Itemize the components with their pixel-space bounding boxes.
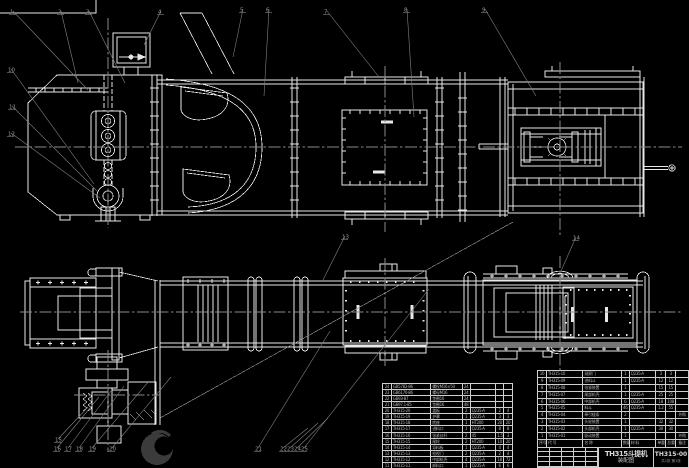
bom-cell: 1 (622, 433, 630, 440)
bom-cell: 驱动装置 (583, 433, 621, 440)
bom-cell: 9 (538, 378, 547, 385)
bom-cell: 中部机壳 (583, 399, 621, 406)
callout-label: 9 (482, 8, 486, 14)
leader-line (58, 407, 88, 439)
bom-cell: 头部机壳 (583, 426, 621, 433)
leader-line (327, 11, 379, 77)
bom-cell: 15 (666, 385, 676, 392)
bom-cell (666, 412, 676, 419)
bom-cell: 2 (538, 426, 547, 433)
leader-line (407, 9, 414, 117)
signature-cell (586, 462, 598, 467)
title-block-name-cell: TH315斗提机 装配图 (598, 447, 654, 467)
bom-cell: 3 (666, 371, 676, 378)
bom-cell (676, 385, 688, 392)
bom-cell (676, 399, 688, 406)
bom-cell: 观察门 (583, 371, 621, 378)
bom-cell: Q235-A (630, 371, 657, 378)
frame-corner (0, 0, 96, 13)
bom-cell: Q235-A (630, 378, 657, 385)
upper-view-head-section (479, 66, 675, 217)
bom-row: 7TH315-07尾部机壳1Q235-A2525 (538, 392, 688, 399)
lower-view-head-plan (464, 266, 649, 359)
leader-line (68, 391, 111, 448)
bom-cell: TH315-01 (547, 433, 583, 440)
bom-cell: 4 (538, 412, 547, 419)
drawing-number: TH315-00 (655, 451, 687, 459)
bom-row: 4TH315-04牵引链条2外购 (538, 412, 688, 419)
bom-cell: TH315-11 (392, 463, 431, 468)
callout-label: 2 (58, 10, 62, 16)
bom-cell: 6 (622, 399, 630, 406)
bom-cell: TH315-03 (547, 419, 583, 426)
bom-cell: 1 (538, 433, 547, 440)
leader-line (61, 11, 78, 83)
watermark-blob (141, 431, 174, 465)
bom-cell: TH315-04 (547, 412, 583, 419)
leader-line (12, 106, 97, 191)
callout-label: 10 (8, 68, 15, 74)
callout-label: 5 (240, 8, 244, 14)
bom-cell (630, 419, 657, 426)
callout-label: 4 (158, 10, 162, 16)
bom-row: 2TH315-02头部机壳1Q235-A3030 (538, 426, 688, 433)
bom-cell: 外购 (676, 412, 688, 419)
callout-label: 3 (86, 10, 90, 16)
callout-label: 7 (324, 10, 328, 16)
bom-cell: 1 (622, 371, 630, 378)
callout-label: 18 (76, 447, 83, 453)
drawing-title: TH315斗提机 (605, 450, 647, 458)
bom-cell (676, 378, 688, 385)
callout-label: 8 (404, 8, 408, 14)
bom-cell: 25 (666, 392, 676, 399)
upper-view-boot-section (28, 33, 162, 220)
bom-cell: 25 (656, 392, 666, 399)
sheet-note: 共1张 第1张 (661, 459, 681, 464)
bom-cell: 1 (622, 378, 630, 385)
callout-label: 13 (342, 235, 349, 241)
leader-line (89, 11, 125, 83)
leader-line (264, 9, 269, 96)
bom-cell: TH315-09 (547, 378, 583, 385)
bom-cell: 11 (383, 463, 392, 468)
bom-row: 6TH315-06中部机壳6Q235-A18108 (538, 399, 688, 406)
bom-row: 8TH315-08张紧装置11515 (538, 385, 688, 392)
callout-label: 21 (255, 447, 262, 453)
bom-cell: 8 (538, 385, 547, 392)
bom-cell (656, 433, 666, 440)
callout-label: 6 (266, 8, 270, 14)
bom-cell (630, 412, 657, 419)
title-block-number-cell: TH315-00 共1张 第1张 (654, 447, 688, 467)
bom-cell: 尾部机壳 (583, 392, 621, 399)
bom-cell: 15 (656, 385, 666, 392)
leader-line (144, 11, 161, 45)
bom-cell (676, 426, 688, 433)
bom-cell: 30 (666, 426, 676, 433)
leader-line (485, 9, 536, 96)
callout-label: 12 (8, 132, 15, 138)
bom-cell (676, 405, 688, 412)
bom-cell: TH315-05 (547, 405, 583, 412)
bom-row: 1TH315-01驱动装置1外购 (538, 433, 688, 440)
callout-label: 16 (54, 447, 61, 453)
bom-cell: 1.2 (656, 405, 666, 412)
cad-sheet: 1234567891011121314151617181920212223242… (0, 0, 689, 468)
bom-cell: 6 (504, 463, 512, 468)
bom-cell: 55 (666, 405, 676, 412)
upper-view-takeup-chain (91, 75, 126, 221)
bom-cell (676, 419, 688, 426)
callout-label: 1 (10, 10, 14, 16)
bom-cell: TH315-02 (547, 426, 583, 433)
signature-cell (574, 462, 586, 467)
lower-view-boot-plan (25, 268, 160, 425)
leader-line (57, 397, 99, 448)
bom-cell: Q235-A (630, 392, 657, 399)
bom-cell (676, 392, 688, 399)
leader-line (561, 237, 576, 271)
callout-label: 22 (280, 447, 287, 453)
bom-cell: 1 (622, 392, 630, 399)
leader-line (11, 133, 100, 198)
bom-cell: 12 (666, 378, 676, 385)
bom-cell: 1 (622, 426, 630, 433)
bom-cell: 32 (656, 419, 666, 426)
bom-cell: Q235-A (630, 426, 657, 433)
leader-line (322, 236, 345, 282)
bom-cell: 1 (463, 463, 471, 468)
bom-table-left: 24GB5782-86螺栓M16×502423GB6170-86螺母M16242… (382, 383, 513, 468)
drawing-subtitle: 装配图 (618, 458, 635, 465)
bom-cell: 18 (656, 399, 666, 406)
signature-cell (550, 462, 562, 467)
bom-cell: 30 (656, 426, 666, 433)
bom-cell: 进料斗 (583, 378, 621, 385)
bom-cell: TH315-08 (547, 385, 583, 392)
bom-cell: 6 (496, 463, 504, 468)
signature-cell (562, 462, 574, 467)
callout-label: 25 (301, 447, 308, 453)
bom-cell: 牵引链条 (583, 412, 621, 419)
bom-cell (656, 412, 666, 419)
bom-cell: 32 (666, 419, 676, 426)
bom-cell: 张紧装置 (583, 385, 621, 392)
bom-cell: 3 (656, 371, 666, 378)
bom-row: 5TH315-05料斗46Q235-A1.255 (538, 405, 688, 412)
bom-cell: 料斗 (583, 405, 621, 412)
leader-line (233, 9, 243, 57)
upper-view-bucket-section (166, 13, 262, 213)
bom-cell: 3 (538, 419, 547, 426)
bom-cell: 12 (656, 378, 666, 385)
bom-cell: 1 (622, 419, 630, 426)
bom-cell (630, 385, 657, 392)
bom-cell: 7 (538, 392, 547, 399)
title-block-signature-grid (538, 447, 598, 467)
callout-label: 14 (573, 236, 580, 242)
bom-row: 3TH315-03头轮装置13232 (538, 419, 688, 426)
callout-label: 20 (109, 447, 116, 453)
title-block: TH315斗提机 装配图 TH315-00 共1张 第1张 (537, 447, 689, 468)
bom-cell: 外购 (676, 433, 688, 440)
lower-view-drive-assembly (79, 357, 156, 443)
bom-cell (630, 433, 657, 440)
bom-cell (666, 433, 676, 440)
bom-cell: TH315-10 (547, 371, 583, 378)
bom-cell (676, 371, 688, 378)
bom-cell: Q235-A (471, 463, 497, 468)
bom-cell: 头轮装置 (583, 419, 621, 426)
callout-label: 19 (89, 447, 96, 453)
bom-cell: 卸料口 (431, 463, 462, 468)
bom-cell: Q235-A (630, 405, 657, 412)
signature-cell (538, 462, 550, 467)
bom-cell: 6 (538, 399, 547, 406)
leader-line (11, 69, 94, 184)
bom-cell: 108 (666, 399, 676, 406)
bom-row: 11TH315-11卸料口1Q235-A66 (383, 463, 512, 468)
callout-label: 17 (65, 447, 72, 453)
bom-row: 9TH315-09进料斗1Q235-A1212 (538, 378, 688, 385)
leader-line (283, 428, 308, 448)
bom-cell: TH315-07 (547, 392, 583, 399)
bom-cell: 2 (622, 412, 630, 419)
bom-cell: Q235-A (630, 399, 657, 406)
bom-row: 10TH315-10观察门1Q235-A33 (538, 371, 688, 378)
bom-cell: 1 (622, 385, 630, 392)
bom-cell: 46 (622, 405, 630, 412)
bom-cell: TH315-06 (547, 399, 583, 406)
bom-cell: 5 (538, 405, 547, 412)
bom-cell: 10 (538, 371, 547, 378)
callout-label: 11 (9, 105, 16, 111)
